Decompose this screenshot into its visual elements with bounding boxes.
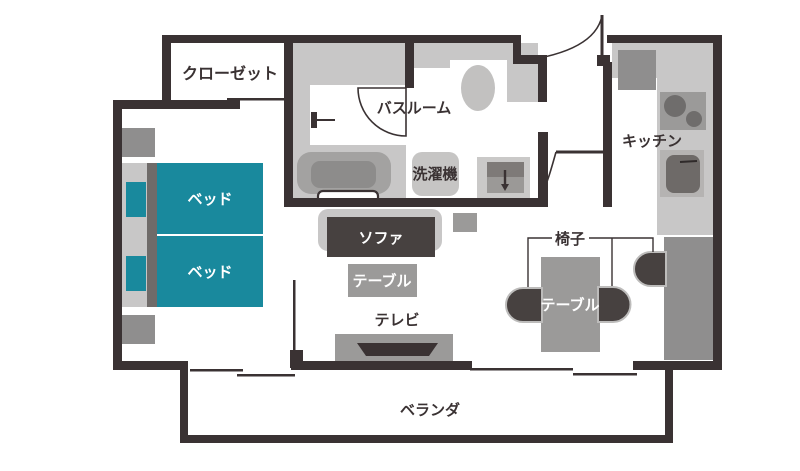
wall-entry-left-upper <box>538 64 547 102</box>
wall-entry-step-v <box>513 43 521 57</box>
wall-bottom-living <box>291 361 472 370</box>
washing-machine-label: 洗濯機 <box>412 165 457 183</box>
wall-bottom-right <box>633 361 722 370</box>
chair-label: 椅子 <box>555 230 585 248</box>
wall-bathroom-bottom <box>284 198 548 207</box>
nightstand-top <box>120 128 155 157</box>
chair-leader-right <box>589 238 653 252</box>
wall-top-kitchen <box>607 35 722 43</box>
bed2-label: ベッド <box>187 263 232 281</box>
dining-table-label: テーブル <box>540 296 599 314</box>
wall-veranda-right <box>665 363 673 441</box>
wall-left-outer <box>113 100 122 370</box>
wall-partition-stub <box>290 350 303 368</box>
burner-small <box>686 111 702 127</box>
kitchen-counter-lower-column <box>664 237 713 360</box>
bed1-label: ベッド <box>187 190 232 208</box>
wall-bottom-bedroom <box>113 361 188 370</box>
sofa-label: ソファ <box>358 229 403 247</box>
closet-label: クローゼット <box>182 64 278 83</box>
tv-screen <box>357 343 438 356</box>
bathroom-label: バスルーム <box>377 99 452 117</box>
kitchen-label: キッチン <box>622 132 682 150</box>
wall-right-outer <box>713 35 722 370</box>
wall-entry-left-lower <box>538 132 548 205</box>
chair-left <box>506 288 542 322</box>
side-table <box>453 213 477 232</box>
nightstand-bottom <box>120 315 155 344</box>
wall-kitchen-left <box>603 62 612 207</box>
bedroom-furniture <box>120 128 263 344</box>
living-table-label: テーブル <box>352 272 411 290</box>
floorplan-canvas: クローゼット バスルーム 洗濯機 キッチン ベッド ベッド ソファ テーブル テ… <box>0 0 800 471</box>
tv-label: テレビ <box>374 311 419 329</box>
chair-right <box>598 287 631 322</box>
wall-bedroom-top <box>113 100 240 109</box>
pillow-2 <box>126 256 146 291</box>
kitchen-faucet <box>680 161 697 162</box>
veranda-label: ベランダ <box>400 401 460 419</box>
wall-bathroom-stub <box>405 43 414 88</box>
wall-closet-left <box>162 35 171 100</box>
toilet-nook-floor2 <box>507 102 538 145</box>
pillow-1 <box>126 182 146 217</box>
refrigerator <box>618 50 656 90</box>
bathtub-inner <box>311 161 376 188</box>
wall-veranda-left <box>180 363 188 441</box>
burner-large <box>664 95 686 117</box>
wall-bathroom-left <box>284 43 293 207</box>
floorplan-svg: クローゼット バスルーム 洗濯機 キッチン ベッド ベッド ソファ テーブル テ… <box>0 0 800 471</box>
toilet <box>461 65 495 111</box>
wall-top-main <box>162 35 521 43</box>
chair-counter <box>634 252 666 286</box>
bed-head-rail <box>147 163 157 307</box>
wall-veranda-bottom <box>180 435 673 443</box>
